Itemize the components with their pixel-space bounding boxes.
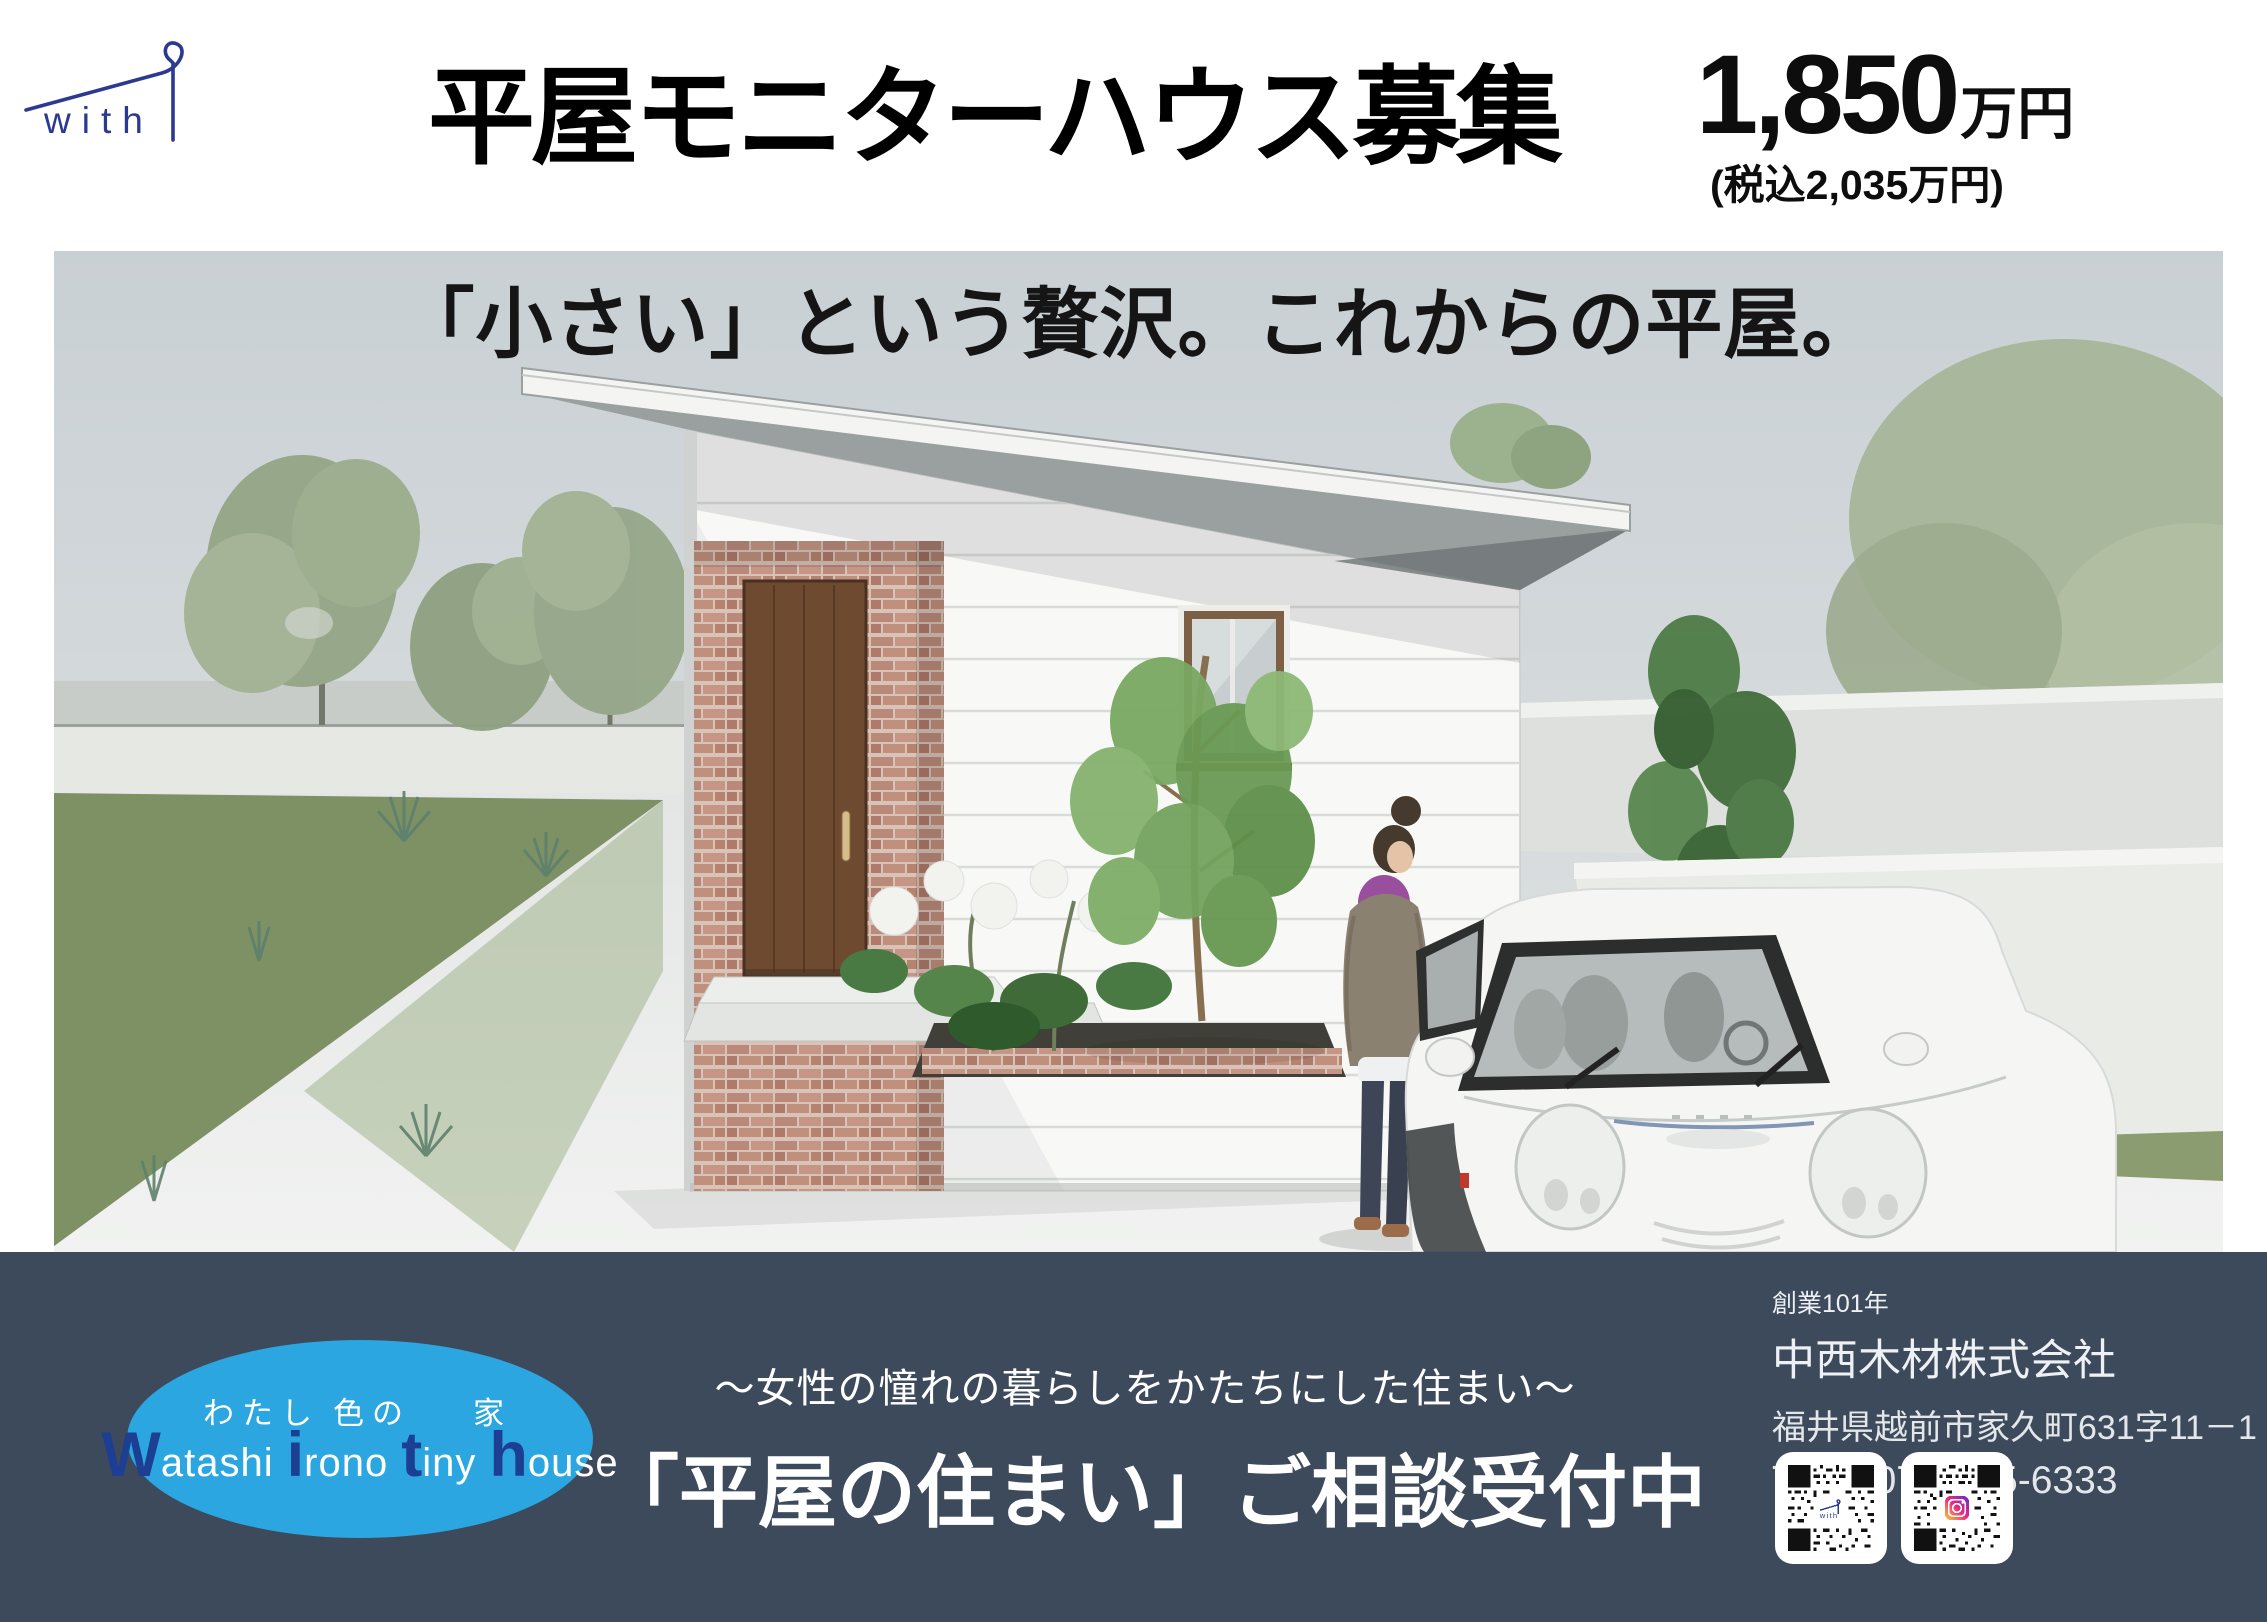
hero-image: 「小さい」という贅沢。これからの平屋。 <box>54 251 2223 1252</box>
car-headlight-right <box>1810 1109 1926 1237</box>
company-since: 創業101年 <box>1772 1284 2257 1320</box>
consultation-cta: 「平屋の住まい」ご相談受付中 <box>600 1428 1690 1543</box>
car-mirror-left <box>1426 1038 1474 1076</box>
footer-center: 〜女性の憧れの暮らしをかたちにした住まい〜 「平屋の住まい」ご相談受付中 <box>600 1252 1690 1543</box>
car-headlight-left <box>1516 1105 1624 1229</box>
house-rendering <box>54 251 2223 1252</box>
brand-badge: わたし 色の 家 Watashi irono tiny house <box>127 1340 593 1538</box>
qr-code-with: with <box>1775 1452 1887 1564</box>
qr-center-wordmark: with <box>1819 1511 1839 1520</box>
qr-with-pattern: with <box>1785 1462 1877 1554</box>
price-amount: 1,850 <box>1696 32 1956 157</box>
flyer-page: with 平屋モニターハウス募集 1,850万円 (税込2,035万円) <box>0 0 2267 1622</box>
car-mirror-right <box>1884 1033 1928 1065</box>
far-right-wall <box>1520 683 2223 863</box>
page-title: 平屋モニターハウス募集 <box>428 30 1559 185</box>
company-address: 福井県越前市家久町631字11－1 <box>1772 1400 2257 1449</box>
car-side-badge <box>1460 1173 1469 1188</box>
tagline: 〜女性の憧れの暮らしをかたちにした住まい〜 <box>600 1356 1690 1414</box>
company-name: 中西木材株式会社 <box>1772 1326 2257 1388</box>
badge-romaji-line: Watashi irono tiny house <box>127 1424 593 1487</box>
qr-instagram-pattern <box>1911 1462 2003 1554</box>
qr-code-instagram <box>1901 1452 2013 1564</box>
logo-wordmark: with <box>44 100 154 142</box>
tree-shadow <box>1084 1037 1324 1065</box>
price-tax-note: (税込2,035万円) <box>1696 151 2074 211</box>
footer-bar: わたし 色の 家 Watashi irono tiny house 〜女性の憧れ… <box>0 1252 2267 1622</box>
with-logo: with <box>22 40 222 150</box>
qr-codes: with <box>1775 1452 2013 1564</box>
door-handle <box>842 811 850 861</box>
hero-caption: 「小さい」という贅沢。これからの平屋。 <box>54 263 2223 374</box>
entry-door <box>744 581 866 977</box>
price-unit: 万円 <box>1960 82 2074 146</box>
price-block: 1,850万円 (税込2,035万円) <box>1696 30 2074 211</box>
company-info: 創業101年 中西木材株式会社 福井県越前市家久町631字11－1 TEL : … <box>1772 1252 2257 1503</box>
instagram-icon <box>1945 1496 1969 1520</box>
